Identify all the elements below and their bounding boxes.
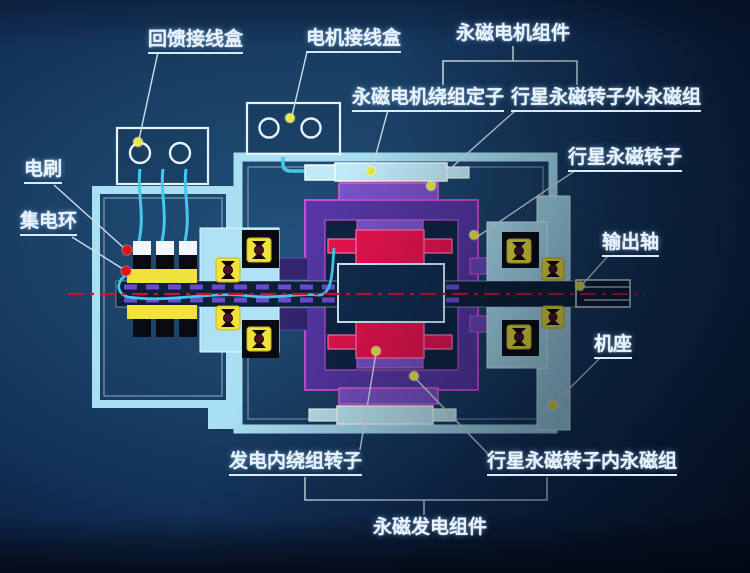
- label-planetary-rotor-outer-pm-group: 行星永磁转子外永磁组: [511, 86, 701, 112]
- marker-dot-red: [121, 266, 131, 276]
- pm-generator-assembly-bracket: [305, 477, 547, 515]
- label-feedback-junction-box: 回馈接线盒: [148, 28, 243, 54]
- marker-dot: [134, 138, 143, 147]
- marker-dot: [410, 372, 419, 381]
- marker-dot-red: [122, 245, 132, 255]
- marker-dot: [427, 182, 436, 191]
- marker-dot: [549, 401, 558, 410]
- outer-pm-bar-top: [339, 183, 438, 200]
- label-machine-frame: 机座: [594, 333, 632, 359]
- label-output-shaft: 输出轴: [602, 231, 659, 257]
- diagram-canvas: 回馈接线盒 电机接线盒 永磁电机组件 永磁电机绕组定子 行星永磁转子外永磁组 行…: [0, 0, 750, 573]
- brush-block: [179, 241, 197, 255]
- bearing-icon: [247, 327, 271, 351]
- wire-connector: [305, 165, 337, 180]
- motor-stator-bar-top: [335, 163, 469, 181]
- slip-ring-bar-top: [127, 269, 197, 283]
- bearing-icon: [507, 239, 531, 263]
- generator-stator-bar-bottom: [309, 406, 456, 424]
- slip-ring-bar-bottom: [127, 305, 197, 319]
- marker-dot: [367, 167, 376, 176]
- bearing-icon: [542, 258, 564, 280]
- bearing-icon: [216, 258, 240, 282]
- marker-dot: [576, 282, 585, 291]
- bearing-icon: [216, 306, 240, 330]
- bearing-icon: [507, 325, 531, 349]
- label-pm-generator-assembly: 永磁发电组件: [373, 516, 487, 538]
- label-generator-inner-winding-rotor: 发电内绕组转子: [229, 450, 362, 476]
- brush-block: [133, 241, 151, 255]
- label-slip-ring: 集电环: [20, 210, 77, 236]
- marker-dot: [470, 231, 479, 240]
- label-pm-motor-winding-stator: 永磁电机绕组定子: [352, 86, 504, 112]
- marker-dot: [372, 347, 381, 356]
- label-brush: 电刷: [24, 158, 62, 184]
- brush-block: [156, 241, 174, 255]
- label-planetary-pm-rotor: 行星永磁转子: [568, 146, 682, 172]
- label-motor-junction-box: 电机接线盒: [306, 27, 401, 53]
- label-pm-motor-assembly: 永磁电机组件: [456, 22, 570, 44]
- label-planetary-rotor-inner-pm-group: 行星永磁转子内永磁组: [487, 450, 677, 476]
- marker-dot: [286, 114, 295, 123]
- outer-pm-bar-bottom: [339, 388, 438, 404]
- bearing-icon: [542, 306, 564, 328]
- pm-motor-assembly-bracket: [443, 46, 577, 85]
- bearing-icon: [247, 238, 271, 262]
